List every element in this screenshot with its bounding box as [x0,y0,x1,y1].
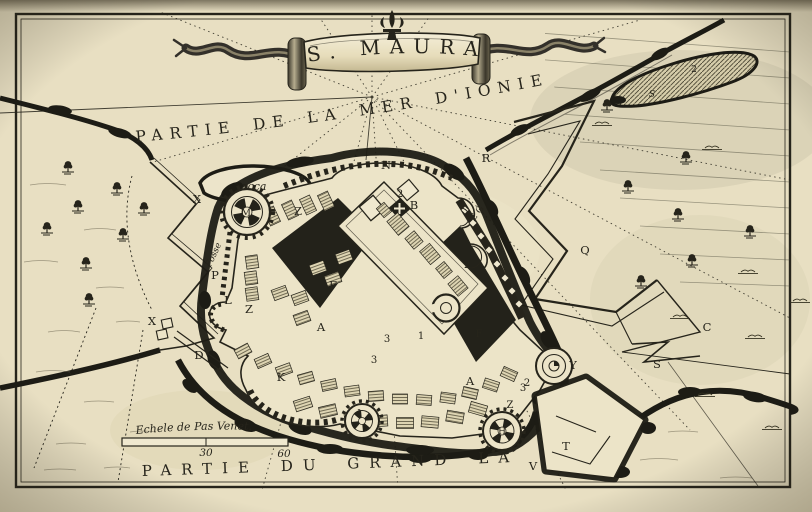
engraved-map-photo: Secca [0,0,812,512]
map-canvas: Secca [0,0,812,512]
vignette [0,0,812,512]
photo-top-edge [0,0,812,12]
